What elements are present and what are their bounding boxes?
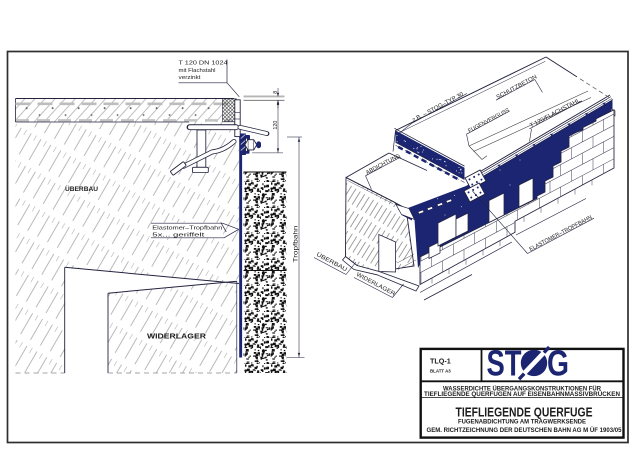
svg-text:Elastomer–Tropfbahn: Elastomer–Tropfbahn: [152, 226, 222, 232]
svg-text:T 120 DN 1024: T 120 DN 1024: [179, 61, 229, 67]
svg-text:mit Flachstahl: mit Flachstahl: [179, 68, 216, 74]
svg-text:8: 8: [273, 91, 279, 94]
svg-text:WIDERLAGER: WIDERLAGER: [147, 334, 206, 341]
svg-text:FUGENABDICHTUNG AM TRAGWERKSEN: FUGENABDICHTUNG AM TRAGWERKSENDE: [458, 418, 586, 425]
svg-text:ÜBERBAU: ÜBERBAU: [315, 251, 348, 273]
svg-text:ÜBERBAU: ÜBERBAU: [65, 186, 99, 193]
svg-text:ST: ST: [487, 343, 522, 384]
svg-text:GEM. RICHTZEICHNUNG DER DEUTSC: GEM. RICHTZEICHNUNG DER DEUTSCHEN BAHN A…: [427, 425, 622, 434]
svg-text:TLQ-1: TLQ-1: [430, 357, 451, 366]
svg-text:BLATT A3: BLATT A3: [430, 369, 451, 374]
svg-text:verzinkt: verzinkt: [179, 75, 201, 81]
svg-text:120: 120: [273, 121, 279, 130]
svg-text:G: G: [547, 343, 569, 384]
svg-text:ELASTOMER–TROPFBAHN: ELASTOMER–TROPFBAHN: [529, 215, 594, 253]
svg-text:TIEFLIEGENDE QUERFUGEN AUF EIS: TIEFLIEGENDE QUERFUGEN AUF EISENBAHNMASS…: [424, 389, 620, 398]
svg-text:TIEFLIEGENDE QUERFUGE: TIEFLIEGENDE QUERFUGE: [456, 404, 593, 419]
svg-text:Tropfbahn: Tropfbahn: [293, 226, 300, 263]
